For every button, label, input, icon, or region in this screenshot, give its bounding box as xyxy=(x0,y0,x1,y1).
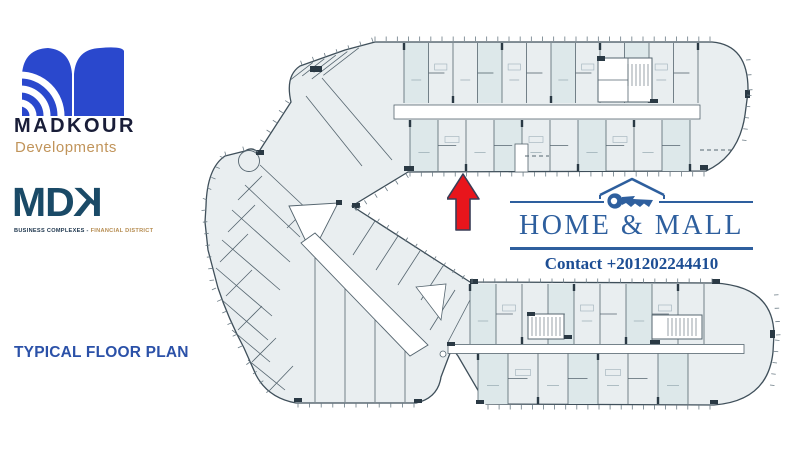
mdk-tagline-right: FINANCIAL DISTRICT xyxy=(91,228,154,234)
mdk-logo: MDK xyxy=(12,182,102,223)
madkour-logo-icon xyxy=(20,44,126,116)
divider-right xyxy=(659,201,753,203)
mdk-tagline-left: BUSINESS COMPLEXES xyxy=(14,228,85,234)
mdk-tagline: BUSINESS COMPLEXES - FINANCIAL DISTRICT xyxy=(14,228,153,234)
location-arrow-icon xyxy=(447,172,480,232)
key-icon xyxy=(607,193,653,208)
caption-typical-floor-plan: TYPICAL FLOOR PLAN xyxy=(14,344,189,362)
madkour-brand-name: MADKOUR xyxy=(14,115,136,138)
mdk-letter-k-mirrored: K xyxy=(74,182,103,223)
promo-icon-row xyxy=(510,172,753,208)
promo-block: HOME & MALL Contact +201202244410 xyxy=(510,172,753,274)
promo-contact: Contact +201202244410 xyxy=(510,254,753,274)
promo-underline xyxy=(510,247,753,250)
slide: MADKOUR Developments MDK BUSINESS COMPLE… xyxy=(0,0,800,450)
mdk-letter-d: D xyxy=(45,179,74,225)
mdk-letter-m: M xyxy=(12,179,45,225)
promo-title: HOME & MALL xyxy=(510,210,753,242)
madkour-brand-subtitle: Developments xyxy=(15,139,117,156)
divider-left xyxy=(510,201,604,203)
